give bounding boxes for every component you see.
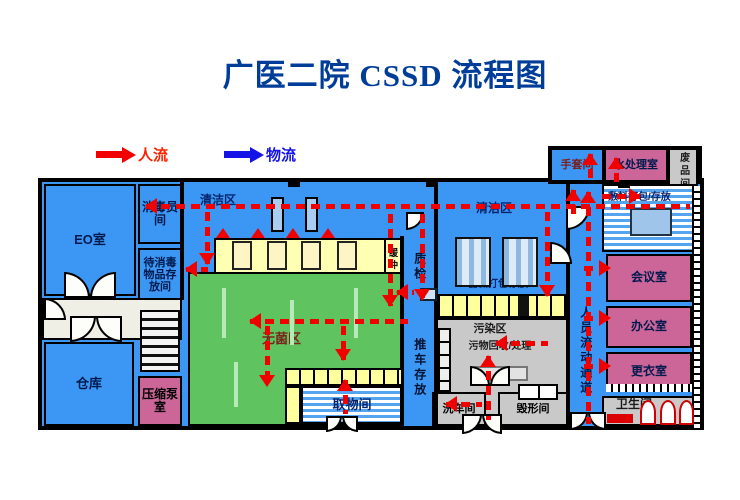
warehouse-room: 仓库 (44, 342, 134, 426)
rack-fixture (234, 362, 238, 407)
flow-arrowhead-icon (414, 289, 430, 301)
sdoor-fixture (301, 241, 321, 270)
mach-fixture (271, 197, 284, 232)
wall-segment (288, 178, 300, 187)
cart-storage-corridor-label: 推车存放 (404, 312, 434, 424)
flow-arrowhead-icon (580, 191, 596, 203)
flow-arrowhead-icon (337, 379, 353, 391)
flow-arrowhead-icon (539, 285, 555, 297)
flow-arrowhead-icon (608, 157, 624, 169)
blackcell-fixture (518, 296, 529, 316)
stairs-fixture (140, 310, 180, 372)
disinfect-staff-room: 消毒员间 (138, 184, 182, 244)
clean-area-right-label: 清洁区 (468, 200, 520, 218)
eo-room-label: EO室 (74, 233, 106, 248)
vticks-fixture (692, 186, 702, 428)
flow-arrowhead-icon (599, 310, 611, 326)
ycell-fixture (285, 386, 301, 424)
tri-fixture (286, 228, 300, 238)
office-room: 办公室 (606, 306, 692, 348)
personnel-corridor-label: 人员流动通道 (572, 280, 598, 422)
changing-room-label: 更衣室 (631, 365, 667, 378)
office-room-label: 办公室 (631, 320, 667, 333)
sdoor-fixture (232, 241, 252, 270)
flow-arrow-line (586, 192, 591, 424)
wall-segment (400, 236, 404, 426)
meeting-room: 会议室 (606, 254, 692, 302)
contaminated-area-label-label: 污染区 (474, 323, 507, 335)
meeting-room-label: 会议室 (631, 271, 667, 284)
rack-fixture (222, 288, 226, 338)
btable2-fixture (630, 208, 672, 236)
redsign-fixture (607, 414, 633, 423)
flow-arrowhead-icon (565, 189, 581, 201)
flow-arrow-line (545, 212, 550, 296)
flow-arrowhead-icon (335, 349, 351, 361)
wall-segment (180, 182, 184, 300)
tri-fixture (251, 228, 265, 238)
sdoor-fixture (337, 241, 357, 270)
flow-arrowhead-icon (629, 188, 641, 204)
to-disinfect-storage-room: 待消毒物品存放间 (138, 248, 182, 302)
stall-fixture (660, 400, 676, 425)
flow-arrowhead-icon (599, 358, 611, 374)
cart-storage-corridor-label-label: 推车存放 (412, 338, 425, 398)
flow-arrow-line (388, 214, 393, 306)
destruction-room-label: 毁形间 (517, 403, 550, 415)
tri-fixture (321, 228, 335, 238)
door-arc (482, 414, 502, 434)
wash-fixture (455, 237, 491, 287)
sdoor-fixture (267, 241, 287, 270)
compression-pump-room-label: 压缩泵室 (140, 388, 180, 415)
flow-arrowhead-icon (185, 261, 197, 277)
wall-segment (618, 180, 630, 188)
flow-arrowhead-icon (495, 335, 507, 351)
flow-arrow-line (146, 204, 690, 209)
flow-arrowhead-icon (145, 198, 157, 214)
warehouse-room-label: 仓库 (76, 377, 102, 392)
rack-fixture (354, 288, 358, 338)
flow-arrowhead-icon (445, 396, 457, 412)
pickup-room-label: 取物间 (332, 398, 371, 413)
wash-fixture (502, 237, 538, 287)
flow-arrowhead-icon (259, 375, 275, 387)
counter-fixture (518, 384, 558, 400)
stall-fixture (679, 400, 694, 425)
cellrow-fixture (438, 294, 568, 318)
tri-fixture (216, 228, 230, 238)
flow-arrow-line (420, 214, 425, 300)
flow-arrow-line (250, 319, 408, 324)
floor-plan: EO室消毒员间待消毒物品存放间仓库压缩泵室清洁区缓冲无菌区取物间推车存放质检清洁… (0, 0, 740, 500)
flow-arrowhead-icon (199, 253, 215, 265)
flow-arrowhead-icon (599, 260, 611, 276)
eo-room: EO室 (44, 184, 136, 296)
flow-arrowhead-icon (582, 153, 598, 165)
door-arc (462, 414, 482, 434)
flow-arrowhead-icon (480, 355, 496, 367)
wall-segment (426, 178, 438, 187)
flow-arrowhead-icon (249, 313, 261, 329)
mach-fixture (305, 197, 318, 232)
lockers-fixture (438, 328, 451, 392)
qc-corridor-label: 质检 (406, 240, 432, 294)
flow-arrowhead-icon (396, 284, 408, 300)
to-disinfect-storage-room-label: 待消毒物品存放间 (140, 257, 180, 294)
stall-fixture (640, 400, 656, 425)
compression-pump-room: 压缩泵室 (138, 376, 182, 426)
hticks-fixture (606, 384, 692, 392)
contaminated-area-label: 污染区 (460, 322, 520, 336)
